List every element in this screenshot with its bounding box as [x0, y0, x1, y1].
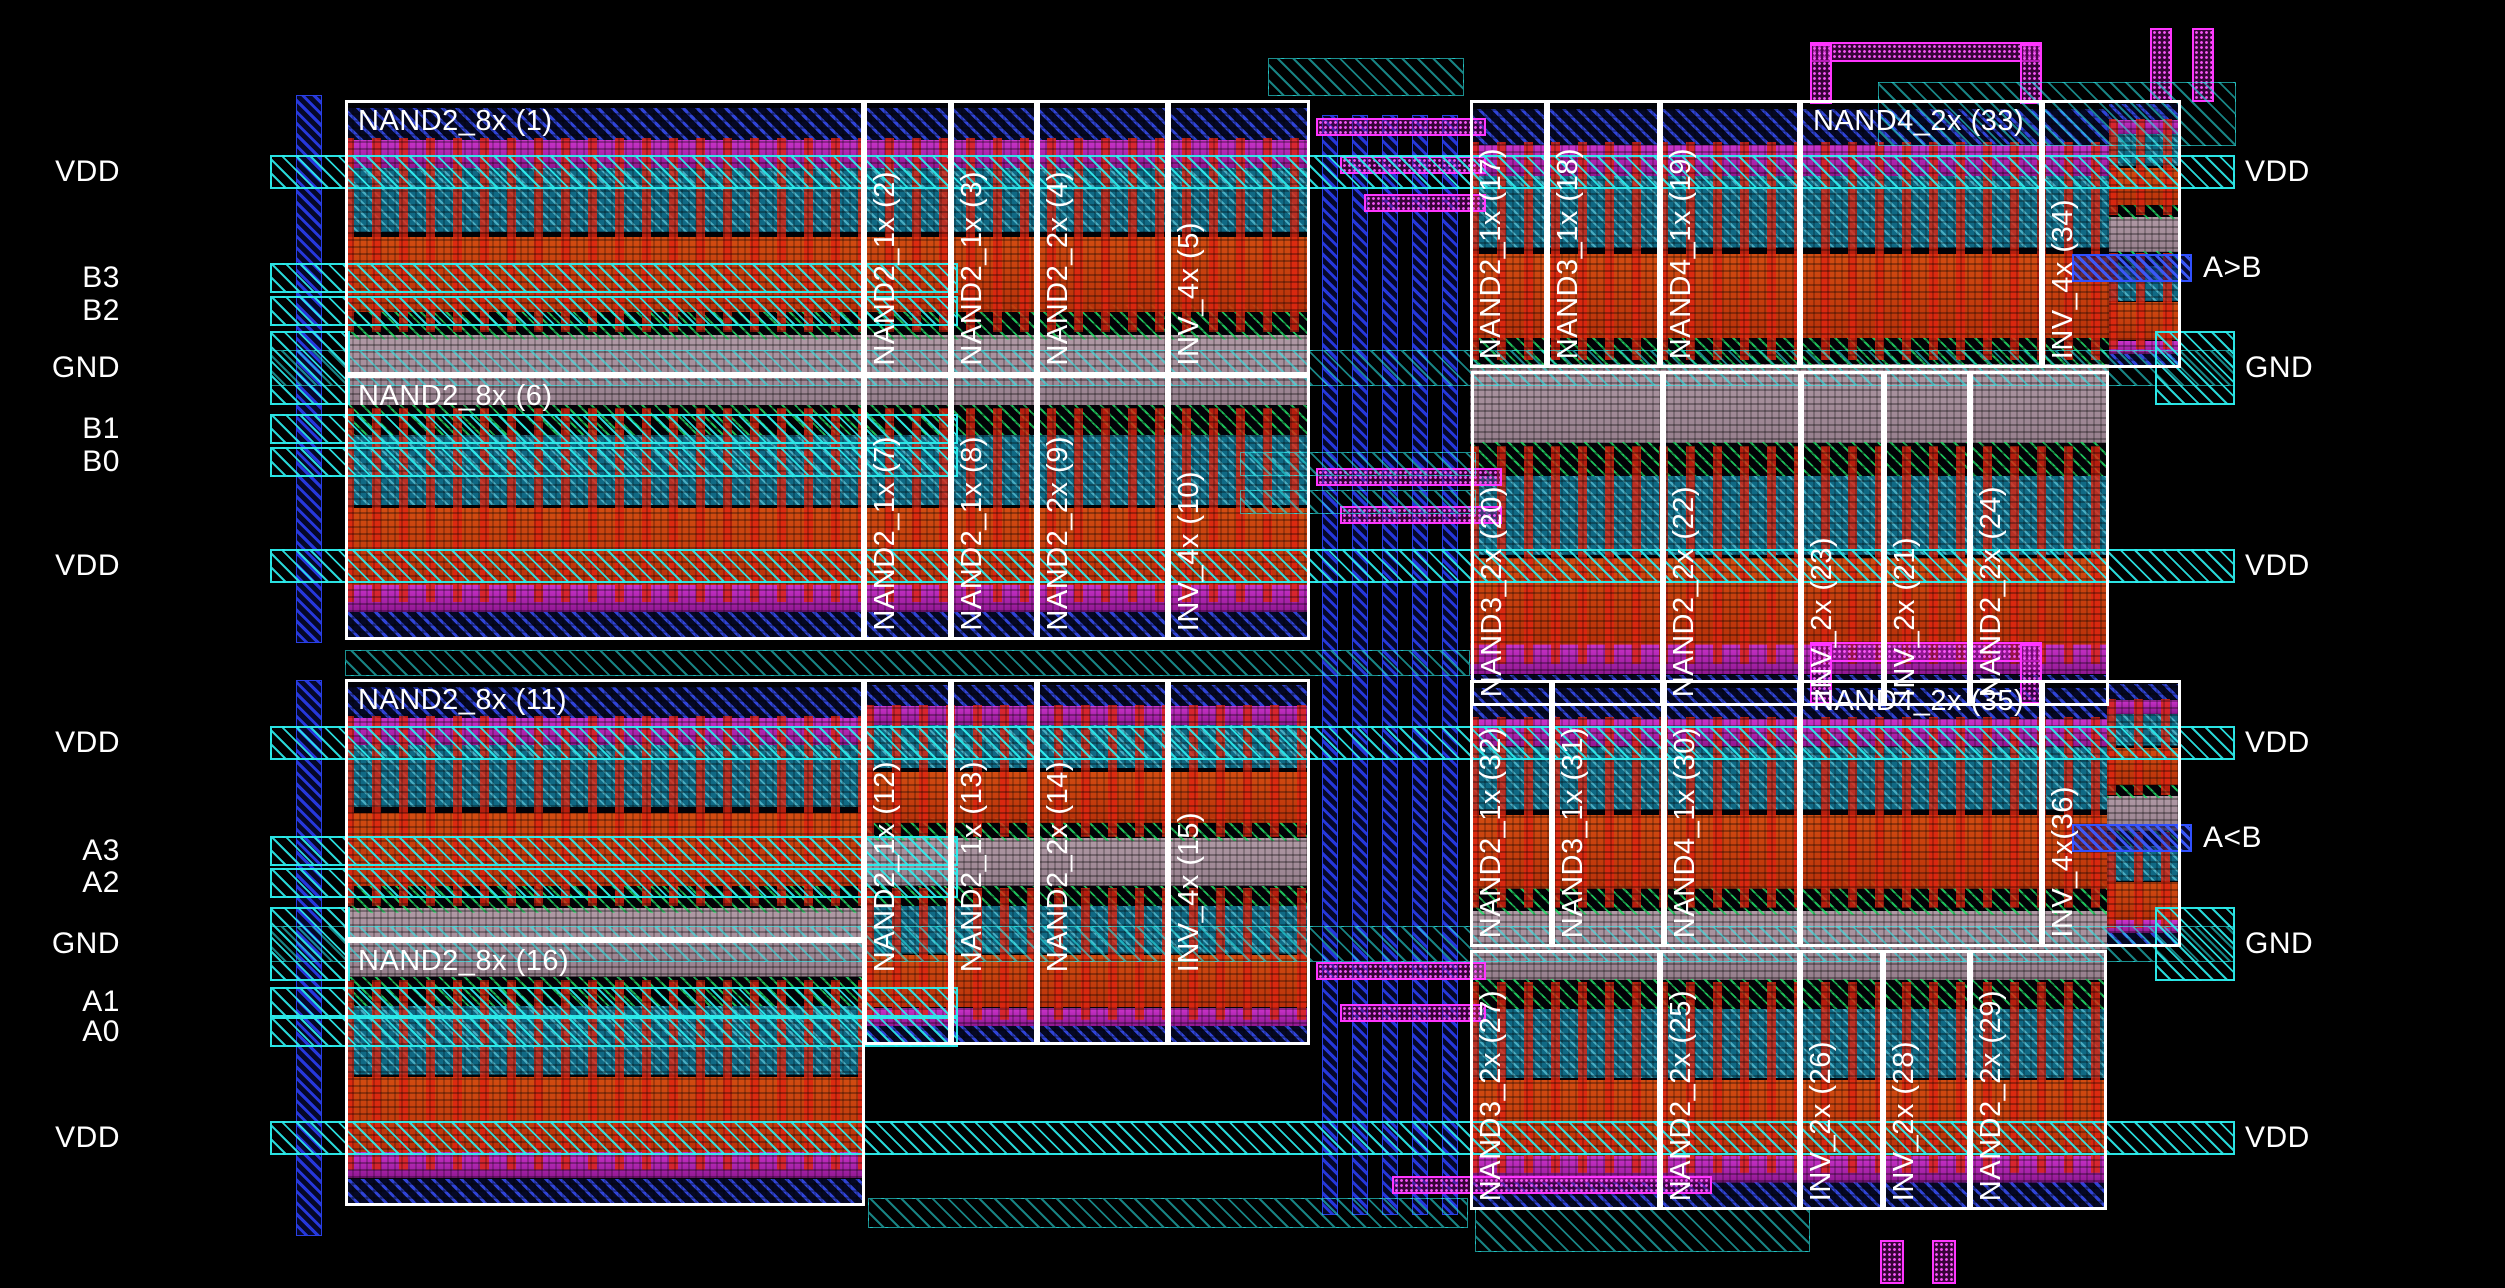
cell-label: NAND2_2x (22)	[1669, 486, 1699, 697]
cell-label: NAND2_2x (29)	[1976, 990, 2006, 1201]
cell-label: NAND2_1x (8)	[957, 436, 987, 631]
cell-nand2-1x-7[interactable]: NAND2_1x (7)	[864, 375, 951, 640]
cell-label: NAND2_8x (1)	[358, 106, 553, 136]
cell-inv-4x-5[interactable]: INV_4x (5)	[1168, 100, 1310, 375]
metal1-wire	[345, 650, 1470, 676]
cell-nand2-2x-25[interactable]: NAND2_2x (25)	[1660, 950, 1800, 1210]
cell-nand2-2x-4[interactable]: NAND2_2x (4)	[1037, 100, 1168, 375]
cell-inv-4x-34[interactable]: INV_4x (34)	[2042, 100, 2181, 368]
metal2-wire	[1810, 44, 1832, 104]
cell-nand2-2x-29[interactable]: NAND2_2x (29)	[1970, 950, 2107, 1210]
metal1-wire	[1475, 1208, 1810, 1252]
cell-nand2-1x-13[interactable]: NAND2_1x (13)	[951, 679, 1037, 1045]
cell-nand2-1x-8[interactable]: NAND2_1x (8)	[951, 375, 1037, 640]
metal2-wire	[1364, 194, 1486, 212]
cell-nand4-2x-35[interactable]: NAND4_2x (35)	[1800, 680, 2042, 947]
port-label-vdd: VDD	[2245, 723, 2405, 763]
cell-nand2-2x-9[interactable]: NAND2_2x (9)	[1037, 375, 1168, 640]
cell-inv-4x-10[interactable]: INV_4x (10)	[1168, 375, 1310, 640]
metal2-wire	[1932, 1240, 1956, 1284]
cell-nand3-2x-27[interactable]: NAND3_2x (27)	[1470, 950, 1660, 1210]
cell-label: NAND2_2x (24)	[1976, 486, 2006, 697]
metal2-wire	[1880, 1240, 1904, 1284]
cell-label: NAND2_8x (6)	[358, 381, 553, 411]
port-label-a-b: A>B	[2203, 248, 2363, 288]
cell-label: INV_4x (5)	[1174, 222, 1204, 366]
cell-nand2-2x-24[interactable]: NAND2_2x (24)	[1970, 371, 2109, 706]
port-label-gnd: GND	[2245, 924, 2405, 964]
cell-label: NAND2_2x (25)	[1666, 990, 1696, 1201]
port-label-a-b: A<B	[2203, 818, 2363, 858]
cell-label: NAND2_2x (9)	[1043, 436, 1073, 631]
cell-label: INV_2x (28)	[1889, 1041, 1919, 1201]
cell-nand2-2x-22[interactable]: NAND2_2x (22)	[1663, 371, 1801, 706]
cell-nand2-1x-3[interactable]: NAND2_1x (3)	[951, 100, 1037, 375]
cell-label: INV_4x (15)	[1174, 812, 1204, 972]
cell-nand4-1x-30[interactable]: NAND4_1x (30)	[1664, 680, 1800, 947]
cell-label: INV_2x (26)	[1806, 1041, 1836, 1201]
cell-label: NAND2_2x (4)	[1043, 171, 1073, 366]
port-label-a0: A0	[0, 1012, 120, 1052]
cell-label: INV_4x (10)	[1174, 471, 1204, 631]
metal2-wire	[1810, 42, 2042, 62]
port-label-b0: B0	[0, 442, 120, 482]
port-label-vdd: VDD	[0, 1118, 120, 1158]
cell-nand2-1x-2[interactable]: NAND2_1x (2)	[864, 100, 951, 375]
cell-nand2-8x-16[interactable]: NAND2_8x (16)	[345, 940, 865, 1206]
cell-label: NAND2_1x (17)	[1476, 148, 1506, 359]
cell-nand2-1x-32[interactable]: NAND2_1x (32)	[1470, 680, 1552, 947]
cell-nand4-1x-19[interactable]: NAND4_1x (19)	[1660, 100, 1800, 368]
port-label-vdd: VDD	[0, 546, 120, 586]
cell-inv-2x-26[interactable]: INV_2x (26)	[1800, 950, 1883, 1210]
port-label-vdd: VDD	[0, 152, 120, 192]
port-label-b2: B2	[0, 291, 120, 331]
cell-nand2-8x-11[interactable]: NAND2_8x (11)	[345, 679, 864, 940]
cell-nand2-1x-12[interactable]: NAND2_1x (12)	[864, 679, 951, 1045]
cell-inv-2x-28[interactable]: INV_2x (28)	[1883, 950, 1970, 1210]
port-label-vdd: VDD	[2245, 546, 2405, 586]
port-label-vdd: VDD	[2245, 1118, 2405, 1158]
cell-label: NAND2_8x (16)	[358, 946, 569, 976]
metal1-wire	[1268, 58, 1464, 96]
cell-label: NAND2_1x (12)	[870, 761, 900, 972]
port-label-a2: A2	[0, 863, 120, 903]
port-label-gnd: GND	[2245, 348, 2405, 388]
cell-label: NAND2_8x (11)	[358, 685, 567, 715]
cell-nand2-1x-17[interactable]: NAND2_1x (17)	[1470, 100, 1547, 368]
cell-label: INV_2x (23)	[1807, 537, 1837, 697]
cell-label: INV_2x (21)	[1890, 537, 1920, 697]
cell-label: NAND2_1x (2)	[870, 171, 900, 366]
cell-label: NAND3_1x (31)	[1558, 727, 1588, 938]
cell-nand3-2x-20[interactable]: NAND3_2x (20)	[1471, 371, 1663, 706]
layout-canvas[interactable]: VDDB3B2GNDB1B0VDDVDDA3A2GNDA1A0VDDVDDA>B…	[0, 0, 2505, 1288]
cell-label: NAND2_1x (3)	[957, 171, 987, 366]
cell-label: NAND3_2x (20)	[1477, 486, 1507, 697]
metal2-wire	[1316, 962, 1486, 980]
cell-label: NAND4_1x (19)	[1666, 148, 1696, 359]
cell-label: NAND2_1x (32)	[1476, 727, 1506, 938]
cell-label: NAND4_2x (35)	[1813, 686, 2024, 716]
cell-label: NAND2_1x (13)	[957, 761, 987, 972]
cell-label: NAND4_1x (30)	[1670, 727, 1700, 938]
cell-inv-2x-21[interactable]: INV_2x (21)	[1884, 371, 1970, 706]
cell-label: NAND3_2x (27)	[1476, 990, 1506, 1201]
cell-nand2-8x-6[interactable]: NAND2_8x (6)	[345, 375, 864, 640]
cell-label: INV_4x (34)	[2048, 199, 2078, 359]
metal1-wire	[868, 1198, 1468, 1228]
cell-nand3-1x-31[interactable]: NAND3_1x (31)	[1552, 680, 1664, 947]
cell-nand4-2x-33[interactable]: NAND4_2x (33)	[1800, 100, 2042, 368]
cell-label: NAND2_2x (14)	[1043, 761, 1073, 972]
cell-label: NAND4_2x (33)	[1813, 106, 2024, 136]
cell-nand2-2x-14[interactable]: NAND2_2x (14)	[1037, 679, 1168, 1045]
port-label-vdd: VDD	[0, 723, 120, 763]
cell-label: NAND3_1x (18)	[1553, 148, 1583, 359]
cell-label: NAND2_1x (7)	[870, 436, 900, 631]
metal2-wire	[1316, 118, 1486, 136]
cell-inv-2x-23[interactable]: INV_2x (23)	[1801, 371, 1884, 706]
cell-inv-4x-36[interactable]: INV_4x(36)	[2042, 680, 2181, 947]
cell-inv-4x-15[interactable]: INV_4x (15)	[1168, 679, 1310, 1045]
port-label-vdd: VDD	[2245, 152, 2405, 192]
cell-nand3-1x-18[interactable]: NAND3_1x (18)	[1547, 100, 1660, 368]
metal2-wire	[1340, 1004, 1486, 1022]
cell-nand2-8x-1[interactable]: NAND2_8x (1)	[345, 100, 864, 375]
port-label-gnd: GND	[0, 348, 120, 388]
port-label-gnd: GND	[0, 924, 120, 964]
cell-label: INV_4x(36)	[2048, 786, 2078, 938]
